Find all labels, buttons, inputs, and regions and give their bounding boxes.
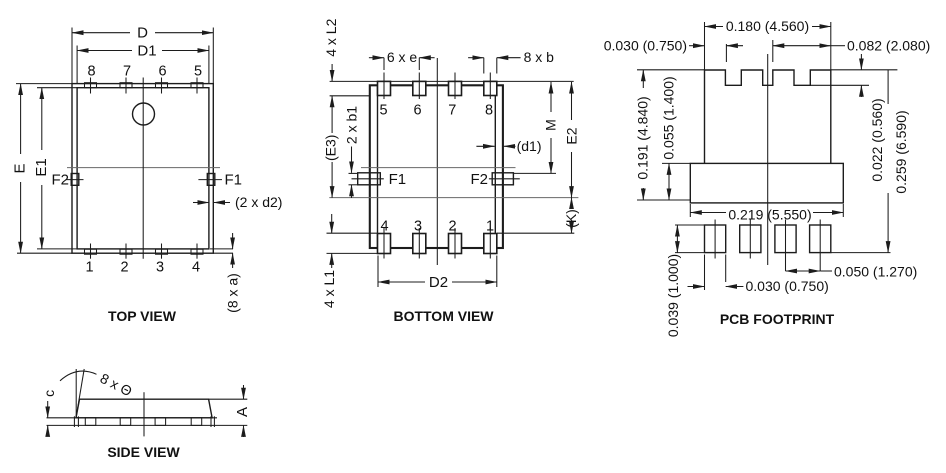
svg-text:8 x b: 8 x b (524, 49, 555, 65)
svg-text:2: 2 (448, 219, 456, 235)
svg-text:TOP VIEW: TOP VIEW (108, 308, 177, 324)
svg-text:6: 6 (413, 103, 421, 119)
svg-text:2 x b1: 2 x b1 (344, 106, 360, 144)
svg-text:(8 x a): (8 x a) (225, 273, 241, 313)
svg-text:E2: E2 (564, 127, 580, 144)
svg-text:0.259 (6.590): 0.259 (6.590) (893, 110, 909, 193)
svg-text:3: 3 (414, 219, 422, 235)
svg-text:PCB FOOTPRINT: PCB FOOTPRINT (720, 311, 835, 327)
svg-text:3: 3 (156, 260, 164, 276)
svg-text:6: 6 (158, 64, 166, 80)
svg-text:0.030 (0.750): 0.030 (0.750) (604, 37, 687, 53)
svg-text:4: 4 (192, 260, 200, 276)
svg-text:0.180 (4.560): 0.180 (4.560) (726, 18, 809, 34)
svg-text:5: 5 (379, 103, 387, 119)
svg-text:(2 x d2): (2 x d2) (235, 194, 282, 210)
svg-text:D2: D2 (429, 274, 448, 291)
svg-text:0.082 (2.080): 0.082 (2.080) (847, 37, 930, 53)
svg-text:4 x L2: 4 x L2 (323, 18, 339, 56)
svg-text:(d1): (d1) (517, 138, 542, 154)
svg-text:F1: F1 (225, 172, 243, 189)
svg-text:8: 8 (87, 64, 95, 80)
svg-text:6 x e: 6 x e (387, 49, 418, 65)
svg-text:5: 5 (194, 64, 202, 80)
svg-text:F1: F1 (389, 171, 407, 188)
svg-text:0.191 (4.840): 0.191 (4.840) (635, 96, 651, 179)
svg-text:0.039 (1.000): 0.039 (1.000) (665, 254, 681, 337)
svg-text:1: 1 (486, 219, 494, 235)
svg-text:0.022 (0.560): 0.022 (0.560) (869, 98, 885, 181)
svg-text:0.055 (1.400): 0.055 (1.400) (661, 76, 677, 159)
svg-text:4: 4 (380, 219, 388, 235)
svg-text:0.050 (1.270): 0.050 (1.270) (834, 264, 917, 280)
svg-text:8 x Θ: 8 x Θ (98, 370, 135, 399)
svg-text:A: A (234, 407, 251, 417)
svg-text:BOTTOM VIEW: BOTTOM VIEW (393, 308, 494, 324)
svg-text:8: 8 (485, 103, 493, 119)
svg-text:F2: F2 (470, 171, 488, 188)
svg-text:c: c (41, 390, 57, 397)
svg-text:(K): (K) (563, 209, 579, 228)
svg-text:E1: E1 (33, 158, 50, 176)
svg-text:D: D (137, 25, 148, 42)
svg-text:E: E (12, 163, 29, 173)
svg-text:SIDE VIEW: SIDE VIEW (107, 444, 180, 460)
svg-text:(E3): (E3) (323, 135, 339, 161)
svg-text:F2: F2 (51, 172, 69, 189)
svg-text:0.030 (0.750): 0.030 (0.750) (746, 278, 829, 294)
svg-text:2: 2 (120, 260, 128, 276)
svg-text:M: M (543, 119, 559, 131)
svg-text:4 x L1: 4 x L1 (321, 270, 337, 308)
svg-text:0.219 (5.550): 0.219 (5.550) (728, 206, 811, 222)
svg-text:7: 7 (448, 103, 456, 119)
svg-text:1: 1 (85, 260, 93, 276)
svg-text:D1: D1 (137, 42, 156, 59)
svg-text:7: 7 (123, 64, 131, 80)
